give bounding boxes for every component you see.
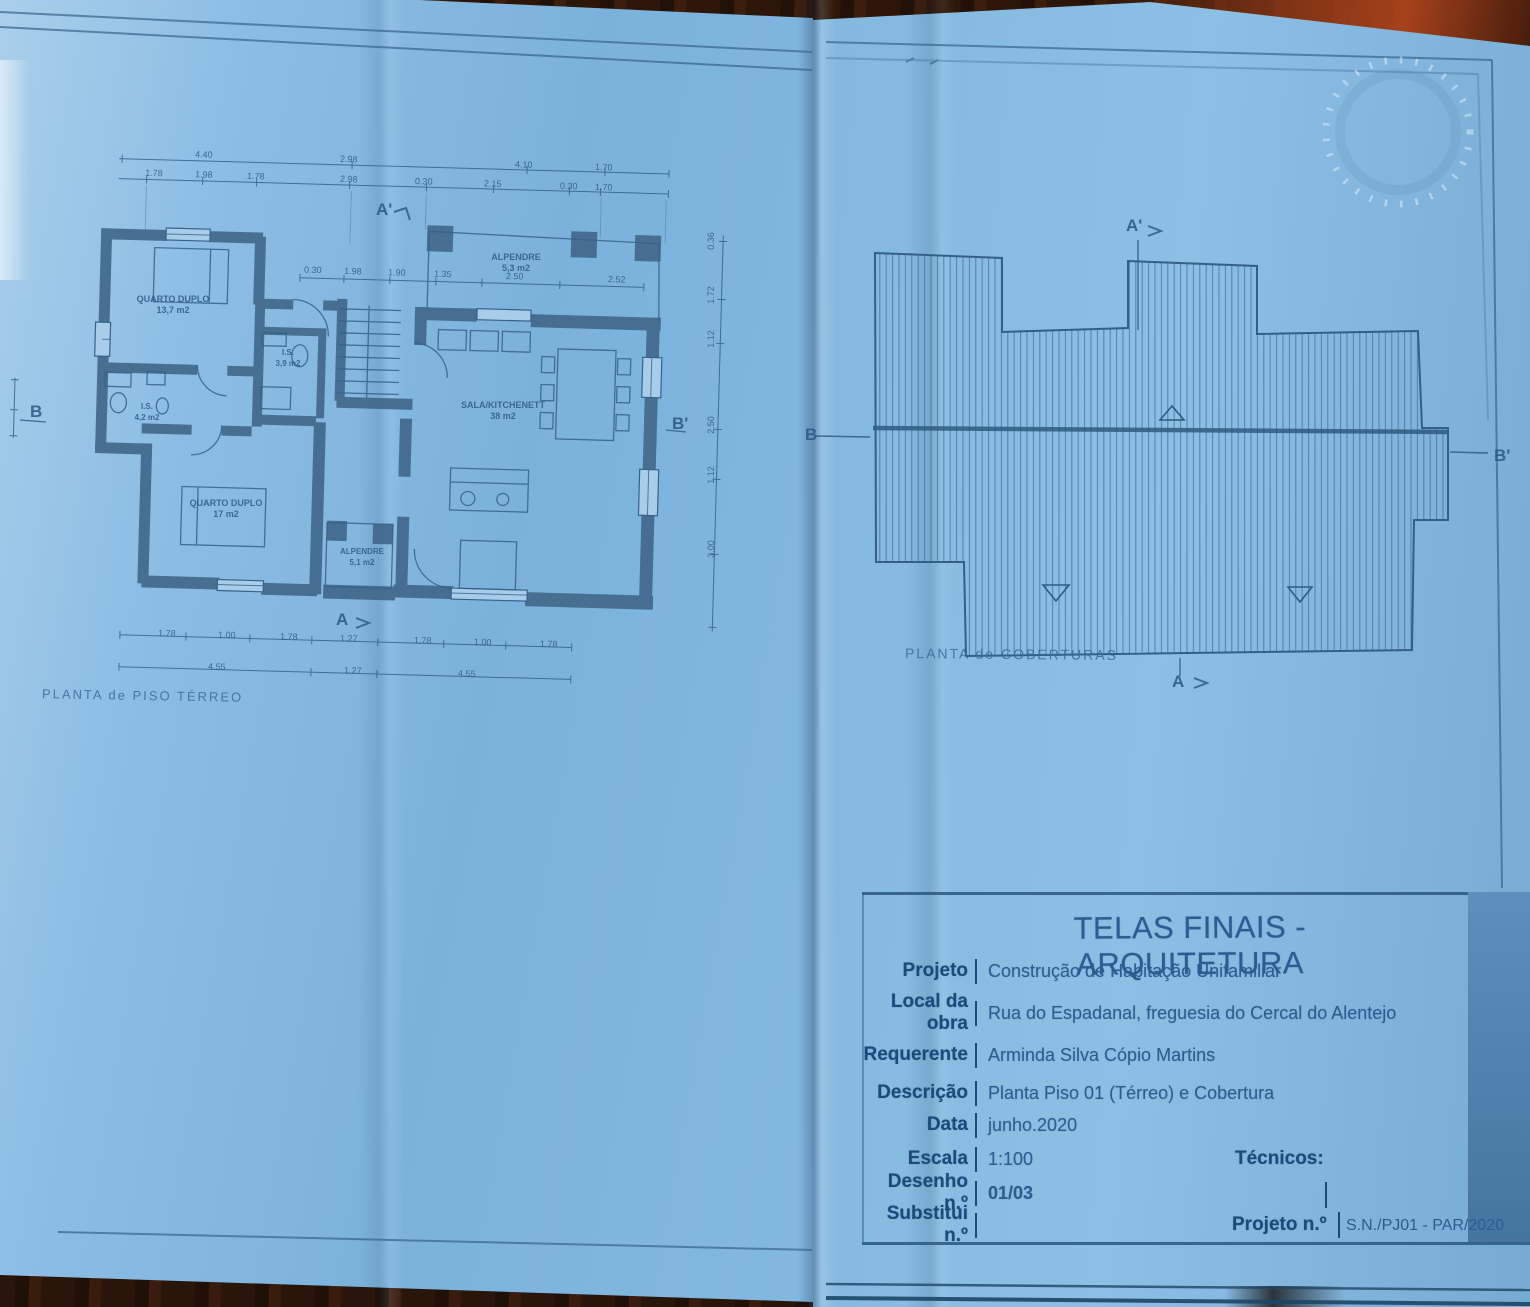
field-divider — [975, 1181, 977, 1206]
title-block-bottom-rule — [862, 1242, 1530, 1245]
field-value: Planta Piso 01 (Térreo) e Cobertura — [988, 1083, 1274, 1104]
section-marker-b-prime-floor: B' — [672, 414, 688, 434]
field-value: junho.2020 — [988, 1115, 1077, 1136]
embossed-seal — [1326, 60, 1470, 204]
section-marker-b-floor: B — [30, 402, 42, 422]
field-label: Substitui n.º — [860, 1203, 975, 1247]
section-marker-b-prime-roof: B' — [1494, 446, 1510, 466]
field-value: Construção de Habitação Unifamiliar — [988, 961, 1281, 982]
section-marker-a-prime-floor: A' — [376, 200, 392, 220]
tecnicos-label: Técnicos: — [1235, 1148, 1324, 1170]
section-marker-b-roof: B — [805, 425, 817, 445]
title-block-row: Escala 1:100 — [860, 1146, 1460, 1172]
field-label: Projeto — [860, 960, 975, 982]
field-divider — [975, 1147, 977, 1172]
field-divider — [975, 1213, 977, 1238]
tecnicos-divider — [1325, 1182, 1327, 1208]
title-block-top-rule — [862, 892, 1468, 895]
dims-right-column: 0.36 1.72 1.12 2.50 1.12 3.00 — [702, 232, 722, 632]
field-value: Rua do Espadanal, freguesia do Cercal do… — [988, 1003, 1396, 1024]
room-label-is2: I.S.4,2 m2 — [87, 402, 207, 423]
room-label-quarto1: QUARTO DUPLO13,7 m2 — [113, 294, 233, 315]
field-label: Escala — [860, 1148, 975, 1170]
field-divider — [975, 959, 977, 984]
field-value: 1:100 — [988, 1149, 1033, 1170]
room-label-sala: SALA/KITCHENETT38 m2 — [443, 400, 563, 421]
room-label-quarto2: QUARTO DUPLO17 m2 — [166, 498, 286, 519]
title-block-row: Descrição Planta Piso 01 (Térreo) e Cobe… — [860, 1080, 1460, 1106]
projeto-n-value: S.N./PJ01 - PAR/2020 — [1346, 1217, 1504, 1235]
field-divider — [975, 1043, 977, 1068]
photo-of-architectural-drawings: QUARTO DUPLO13,7 m2 I.S.3,9 m2 I.S.4,2 m… — [0, 0, 1530, 1307]
field-value: Arminda Silva Cópio Martins — [988, 1045, 1215, 1066]
roof-plan-drawing — [816, 226, 1488, 688]
projeto-n-label: Projeto n.º — [1232, 1214, 1327, 1236]
room-label-alpendre-bottom: ALPENDRE5,1 m2 — [302, 547, 422, 568]
roof-plan-title: PLANTA de COBERTURAS — [905, 645, 1118, 663]
field-divider — [975, 1001, 977, 1026]
sheet-edge-strip — [1468, 892, 1530, 1242]
title-block-row: Requerente Arminda Silva Cópio Martins — [860, 1042, 1460, 1068]
section-marker-a-floor: A — [336, 610, 348, 630]
field-label: Descrição — [860, 1082, 975, 1104]
room-label-is1: I.S.3,9 m2 — [228, 348, 348, 369]
title-block: TELAS FINAIS - ARQUITETURA Projeto Const… — [860, 890, 1530, 1260]
field-label: Local da obra — [860, 991, 975, 1035]
title-block-row: Local da obra Rua do Espadanal, freguesi… — [860, 1000, 1460, 1026]
title-block-row: Projeto Construção de Habitação Unifamil… — [860, 958, 1460, 984]
field-divider — [975, 1113, 977, 1138]
title-block-row: Data junho.2020 — [860, 1112, 1460, 1138]
field-divider — [975, 1081, 977, 1106]
section-marker-a-prime-roof: A' — [1126, 216, 1142, 236]
section-marker-a-roof: A — [1172, 672, 1184, 692]
field-label: Data — [860, 1114, 975, 1136]
field-label: Requerente — [860, 1044, 975, 1066]
field-value: 01/03 — [988, 1183, 1033, 1204]
projeto-n-divider — [1338, 1212, 1340, 1238]
sheet-bottom-lines — [826, 1284, 1530, 1304]
